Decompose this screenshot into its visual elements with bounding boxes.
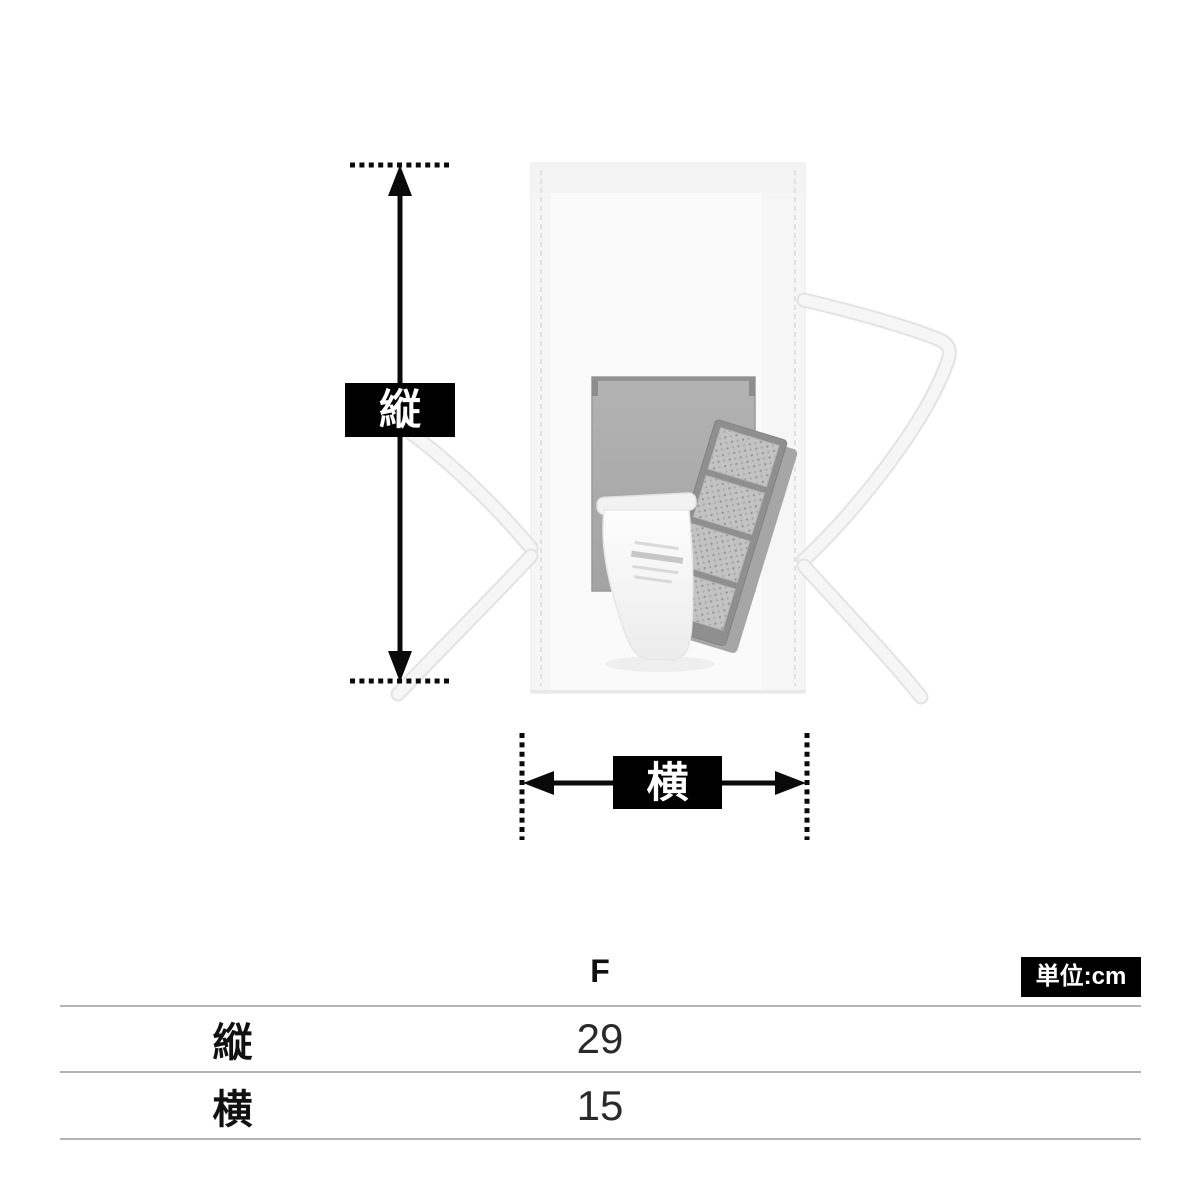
size-table: F 単位:cm 縦 29 横 15 bbox=[60, 938, 1141, 1140]
size-table-header-row: F 単位:cm bbox=[60, 938, 1141, 1007]
arrowhead-left-icon bbox=[523, 771, 554, 795]
row-label: 横 bbox=[60, 1077, 405, 1135]
row-label: 縦 bbox=[60, 1010, 405, 1068]
vertical-dim-label: 縦 bbox=[345, 383, 455, 437]
table-row: 横 15 bbox=[60, 1073, 1141, 1140]
unit-badge: 単位:cm bbox=[1021, 957, 1141, 997]
horizontal-dim-label: 横 bbox=[613, 756, 722, 809]
row-value: 15 bbox=[405, 1082, 795, 1130]
row-value: 29 bbox=[405, 1015, 795, 1063]
table-row: 縦 29 bbox=[60, 1007, 1141, 1073]
arrowhead-up-icon bbox=[388, 165, 412, 196]
arrowhead-right-icon bbox=[775, 771, 806, 795]
right-drawstring-ribbon bbox=[804, 300, 949, 697]
product-size-screenshot: 縦 横 F 単位:cm 縦 29 横 15 bbox=[0, 0, 1200, 1200]
left-drawstring-ribbon bbox=[398, 434, 531, 694]
size-column-header: F bbox=[405, 953, 795, 990]
